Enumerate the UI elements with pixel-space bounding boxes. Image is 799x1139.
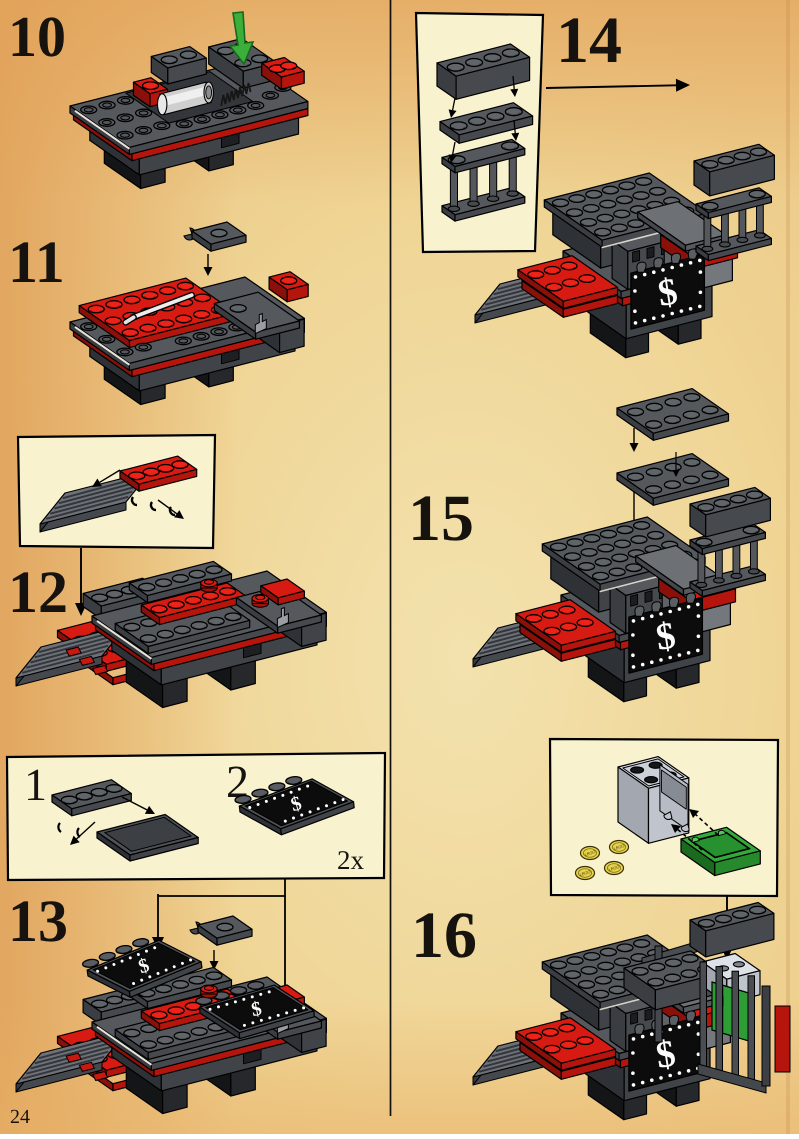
- svg-text:14: 14: [556, 4, 622, 77]
- svg-text:12: 12: [8, 559, 68, 625]
- svg-text:10: 10: [8, 4, 66, 69]
- svg-text:15: 15: [408, 482, 474, 555]
- svg-text:1: 1: [24, 759, 47, 810]
- svg-text:16: 16: [411, 899, 477, 972]
- svg-text:24: 24: [10, 1106, 30, 1128]
- svg-text:11: 11: [8, 229, 65, 295]
- svg-text:2x: 2x: [337, 845, 365, 875]
- svg-text:13: 13: [8, 888, 68, 954]
